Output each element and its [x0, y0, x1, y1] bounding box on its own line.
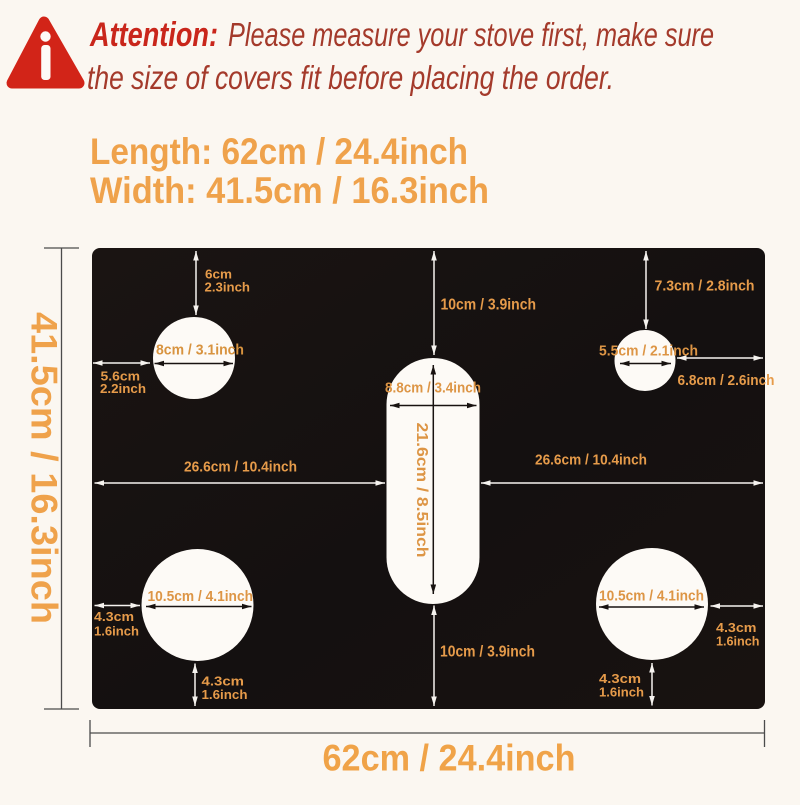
svg-text:1.6inch: 1.6inch — [202, 687, 248, 702]
svg-text:1.6inch: 1.6inch — [94, 624, 139, 639]
svg-text:10cm / 3.9inch: 10cm / 3.9inch — [440, 644, 535, 661]
svg-text:the size of covers fit before: the size of covers fit before placing th… — [87, 59, 614, 96]
svg-text:Length: 62cm / 24.4inch: Length: 62cm / 24.4inch — [90, 131, 468, 172]
svg-text:26.6cm / 10.4inch: 26.6cm / 10.4inch — [535, 453, 647, 469]
svg-text:10cm / 3.9inch: 10cm / 3.9inch — [441, 297, 537, 314]
svg-text:8.8cm / 3.4inch: 8.8cm / 3.4inch — [385, 381, 481, 397]
svg-text:5.5cm / 2.1inch: 5.5cm / 2.1inch — [599, 344, 698, 360]
svg-text:7.3cm / 2.8inch: 7.3cm / 2.8inch — [655, 279, 755, 295]
svg-text:41.5cm / 16.3inch: 41.5cm / 16.3inch — [24, 312, 65, 624]
svg-text:26.6cm / 10.4inch: 26.6cm / 10.4inch — [184, 460, 297, 476]
svg-text:62cm / 24.4inch: 62cm / 24.4inch — [323, 738, 576, 779]
svg-text:10.5cm / 4.1inch: 10.5cm / 4.1inch — [148, 589, 254, 605]
svg-text:1.6inch: 1.6inch — [716, 634, 760, 649]
svg-text:2.3inch: 2.3inch — [205, 280, 251, 295]
svg-text:8cm / 3.1inch: 8cm / 3.1inch — [156, 343, 244, 359]
svg-text:Attention:: Attention: — [89, 16, 218, 54]
svg-text:Width: 41.5cm / 16.3inch: Width: 41.5cm / 16.3inch — [90, 170, 489, 211]
svg-text:10.5cm / 4.1inch: 10.5cm / 4.1inch — [599, 589, 704, 605]
svg-text:6.8cm / 2.6inch: 6.8cm / 2.6inch — [678, 373, 775, 389]
svg-text:1.6inch: 1.6inch — [599, 685, 644, 700]
svg-text:21.6cm / 8.5inch: 21.6cm / 8.5inch — [413, 423, 430, 558]
svg-text:2.2inch: 2.2inch — [100, 381, 146, 396]
svg-text:4.3cm: 4.3cm — [94, 609, 134, 624]
svg-text:Please measure your stove firs: Please measure your stove first, make su… — [228, 16, 714, 53]
